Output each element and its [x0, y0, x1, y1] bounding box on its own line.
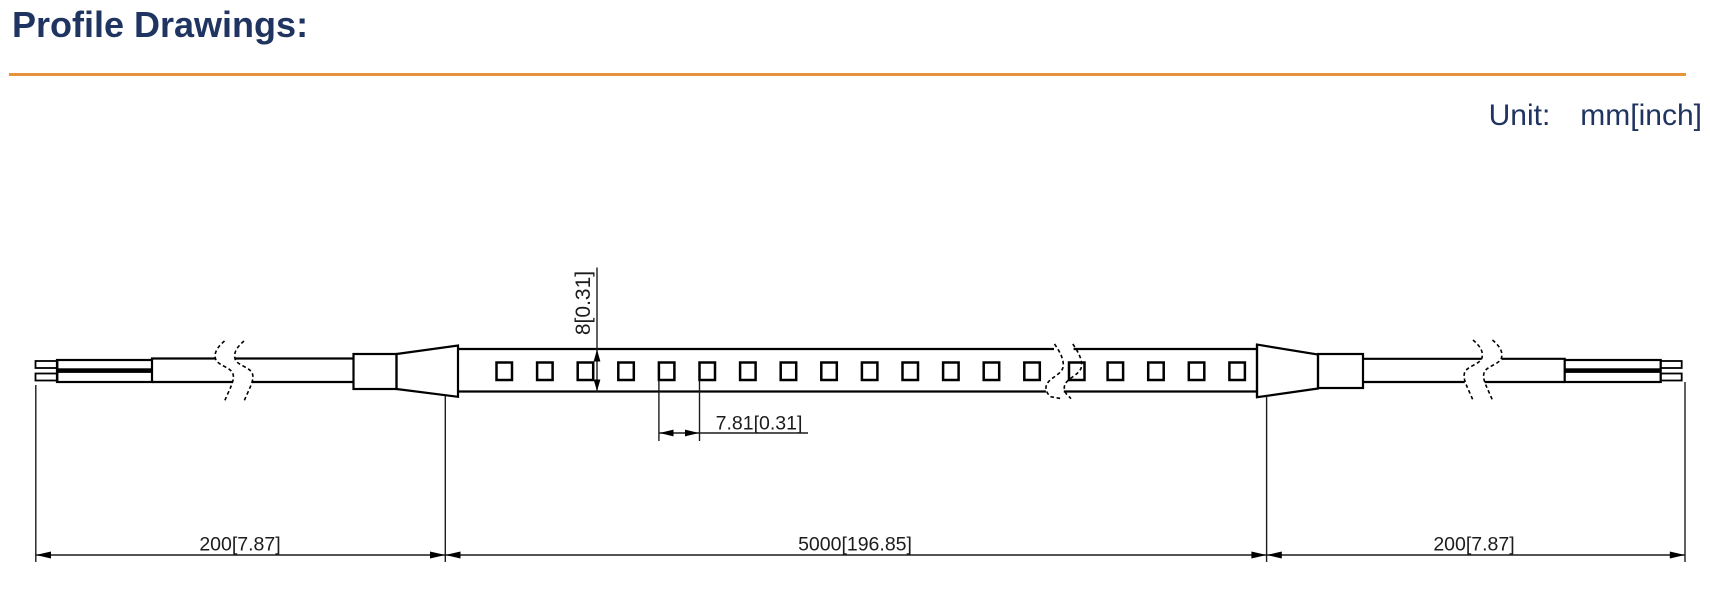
svg-text:8[0.31]: 8[0.31] — [572, 271, 595, 335]
svg-text:200[7.87]: 200[7.87] — [199, 534, 280, 556]
svg-text:7.81[0.31]: 7.81[0.31] — [716, 413, 803, 435]
svg-text:5000[196.85]: 5000[196.85] — [798, 534, 912, 556]
svg-text:200[7.87]: 200[7.87] — [1433, 534, 1514, 556]
